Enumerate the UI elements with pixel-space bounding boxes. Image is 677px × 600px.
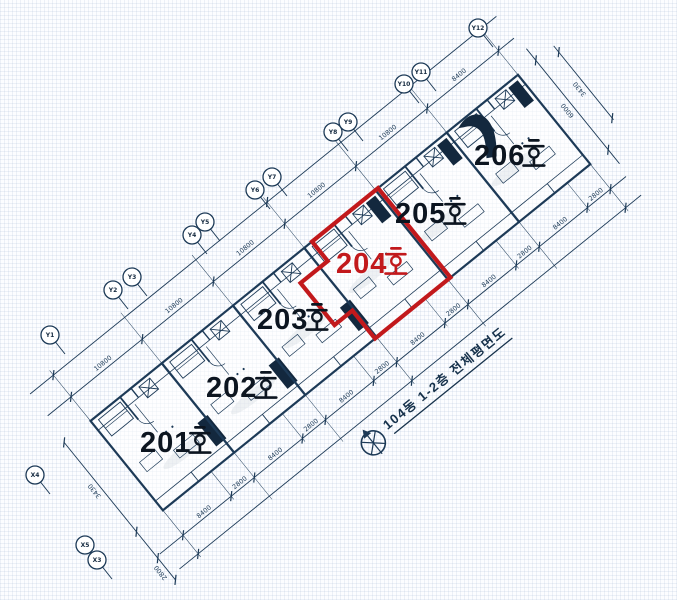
dim-label-lower: 2800 <box>373 359 391 376</box>
axis-bubble-Y6: Y6 <box>246 181 270 209</box>
axis-bubble-Y2: Y2 <box>104 281 128 309</box>
axis-bubble-Y11: Y11 <box>412 63 436 91</box>
unit-number-text: 205 <box>395 198 446 230</box>
caption-underline <box>394 338 512 434</box>
bubble-label: Y3 <box>127 274 137 281</box>
bubble-label: Y10 <box>397 81 411 88</box>
dim-label-lower: 2800 <box>516 244 534 261</box>
dim-label-upper: 8400 <box>450 67 468 84</box>
dim-label-left: 2800 <box>152 564 169 582</box>
bubble-leader <box>138 284 148 296</box>
extension-line <box>448 280 486 327</box>
dim-tick <box>621 203 631 213</box>
dim-label-right: 3430 <box>571 80 588 98</box>
bubble-leader <box>484 35 494 47</box>
unit-number-text: 204 <box>336 248 387 280</box>
extension-line <box>263 197 304 248</box>
dim-label-upper: 10800 <box>377 123 398 142</box>
dim-label-upper: 10800 <box>306 181 327 200</box>
dim-label-lower: 8400 <box>195 503 213 520</box>
dim-tick <box>59 437 69 447</box>
bubble-leader <box>261 197 271 209</box>
axis-bubble-Y1: Y1 <box>41 326 65 354</box>
dim-tick <box>131 527 141 537</box>
dim-label-lower: 2800 <box>231 475 249 492</box>
dim-label-right: 6000 <box>559 102 576 120</box>
bubble-leader <box>354 129 364 141</box>
axis-bubble-X4: X4 <box>26 466 50 494</box>
dim-label-lower: 8400 <box>337 388 355 405</box>
bubble-label: Y1 <box>45 332 55 339</box>
extension-line <box>406 82 447 133</box>
bubble-label: Y9 <box>343 119 353 126</box>
extension-line <box>50 370 91 421</box>
dim-tick <box>170 575 180 585</box>
extension-line <box>121 313 162 364</box>
dim-label-lower: 8400 <box>551 215 569 232</box>
dim-tick <box>48 370 58 380</box>
dim-label-upper: 10800 <box>164 296 185 315</box>
unit-number-text: 203 <box>257 304 308 336</box>
axis-bubble-Y12: Y12 <box>469 19 493 47</box>
dim-tick <box>607 113 617 123</box>
dim-label-left: 3430 <box>86 482 103 500</box>
rotated-plan-group: 1080010800108001080010800840084002800840… <box>15 0 677 600</box>
dim-label-lower: 2800 <box>302 417 320 434</box>
bubble-label: Y11 <box>414 69 428 76</box>
floor-plan-svg: 1080010800108001080010800840084002800840… <box>0 0 677 600</box>
extension-line <box>163 510 201 557</box>
dim-label-lower: 2800 <box>444 301 462 318</box>
bubble-label: Y12 <box>471 25 485 32</box>
extension-line <box>335 140 376 191</box>
unit-number-text: 202 <box>206 372 257 404</box>
bubble-leader <box>427 79 437 91</box>
bubble-label: Y2 <box>108 287 118 294</box>
bubble-leader <box>119 297 129 309</box>
bubble-leader <box>211 229 221 241</box>
bubble-label: Y6 <box>250 187 260 194</box>
bubble-leader <box>198 242 208 254</box>
unit-number-text: 206 <box>474 140 525 172</box>
dim-label-upper: 10800 <box>235 238 256 257</box>
bubble-label: X5 <box>81 542 90 549</box>
extension-line <box>590 164 628 211</box>
extension-line <box>377 337 415 384</box>
bubble-label: Y5 <box>200 219 210 226</box>
extension-line <box>305 395 343 442</box>
axis-bubble-Y3: Y3 <box>123 268 147 296</box>
dim-tick <box>153 553 163 563</box>
dim-tick <box>554 47 564 57</box>
bubble-leader <box>278 184 288 196</box>
bubble-label: Y4 <box>187 232 197 239</box>
extension-line <box>234 453 272 500</box>
dim-tick <box>531 55 541 65</box>
dim-tick <box>193 549 203 559</box>
dim-label-lower: 8400 <box>480 273 498 290</box>
bubble-leader <box>103 567 113 579</box>
floor-plan-canvas: 1080010800108001080010800840084002800840… <box>0 0 677 600</box>
dim-label-upper: 10800 <box>92 354 113 373</box>
axis-bubble-X3: X3 <box>88 551 112 579</box>
dim-label-lower: 2800 <box>587 186 605 203</box>
bubble-label: Y7 <box>267 174 277 181</box>
extension-line <box>192 255 233 306</box>
axis-bubble-Y7: Y7 <box>263 168 287 196</box>
bubble-leader <box>41 482 51 494</box>
bubble-label: X4 <box>31 472 40 479</box>
dim-label-lower: 8400 <box>409 330 427 347</box>
bubble-leader <box>56 342 66 354</box>
dim-tick <box>603 145 613 155</box>
dim-label-lower: 8400 <box>266 446 284 463</box>
drawing-caption: 104동 1-2층 전체평면도 <box>380 324 509 433</box>
extension-line <box>519 222 557 269</box>
bubble-label: Y8 <box>328 129 338 136</box>
dim-tick <box>407 376 417 386</box>
unit-number-text: 201 <box>140 427 191 459</box>
bubble-label: X3 <box>93 557 102 564</box>
